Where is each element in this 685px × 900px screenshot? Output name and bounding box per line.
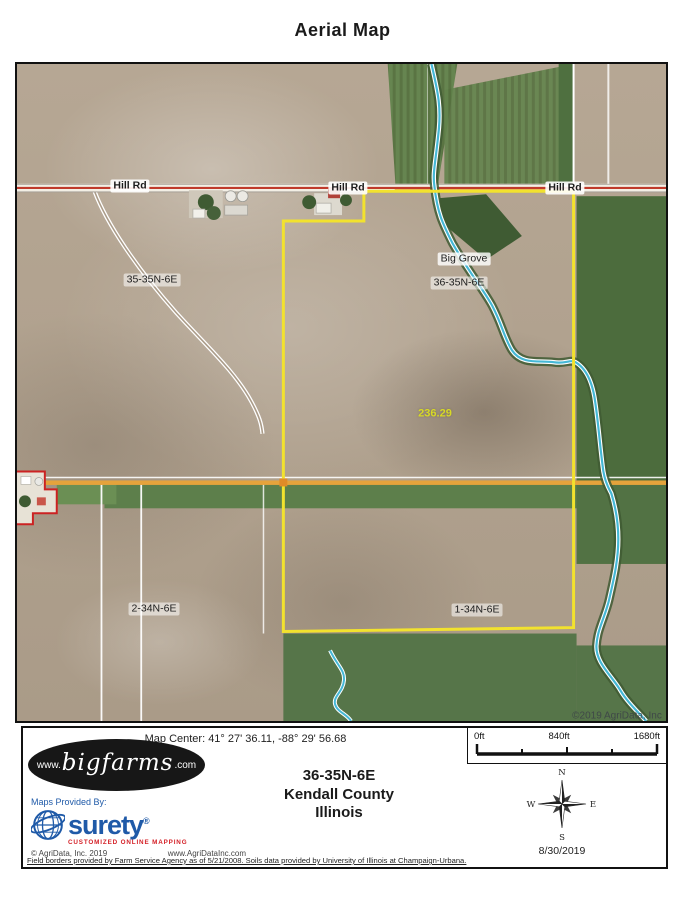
surety-tagline: CUSTOMIZED ONLINE MAPPING [68, 839, 187, 846]
farmstead-red-outline [17, 472, 57, 525]
aerial-map: Hill Rd Hill Rd Hill Rd 35-35N-6E Big Gr… [15, 62, 668, 723]
road-label-hill-rd-2: Hill Rd [328, 182, 367, 195]
provider-label: Maps Provided By: [31, 797, 266, 807]
road-label-hill-rd-3: Hill Rd [545, 182, 584, 195]
surety-wordmark: surety® [68, 810, 150, 840]
surety-globe-icon [31, 808, 65, 842]
location-county: Kendall County [239, 786, 439, 805]
scale-tick-840: 840ft [549, 731, 570, 742]
aerial-imagery [17, 64, 666, 721]
scale-bar: 0ft 840ft 1680ft [467, 728, 666, 764]
data-source-disclaimer: Field borders provided by Farm Service A… [27, 856, 567, 865]
location-block: 36-35N-6E Kendall County Illinois [239, 767, 439, 823]
compass-w: W [527, 800, 536, 810]
road-label-hill-rd-1: Hill Rd [110, 180, 149, 193]
township-label-35-35n-6e: 35-35N-6E [124, 274, 181, 287]
township-label-36-35n-6e: 36-35N-6E [431, 277, 488, 290]
map-footer: Map Center: 41° 27' 36.11, -88° 29' 56.6… [21, 726, 668, 869]
compass-rose-icon: N S E W [522, 764, 602, 844]
bigfarms-tld: .com [174, 760, 196, 771]
compass-n: N [558, 768, 566, 778]
compass-s: S [559, 833, 565, 843]
scale-tick-1680: 1680ft [634, 731, 660, 742]
compass-e: E [590, 800, 596, 810]
scale-tick-0: 0ft [474, 731, 485, 742]
township-label-2-34n-6e: 2-34N-6E [129, 603, 180, 616]
boundary-road-marker [279, 478, 287, 486]
farm-road [95, 191, 263, 434]
township-label-1-34n-6e: 1-34N-6E [452, 604, 503, 617]
place-label-big-grove: Big Grove [438, 253, 491, 266]
bigfarms-name: bigfarms [62, 750, 174, 776]
section-road [17, 480, 666, 484]
location-state: Illinois [239, 804, 439, 823]
bigfarms-www: www. [37, 760, 61, 771]
farmstead-west [189, 190, 248, 220]
aerial-map-page: Aerial Map [0, 0, 685, 900]
registered-mark: ® [143, 816, 150, 826]
provider-block: Maps Provided By: surety® CUSTOMIZED ONL… [31, 797, 266, 858]
acreage-label: 236.29 [415, 408, 455, 421]
location-parcel: 36-35N-6E [239, 767, 439, 786]
copyright-watermark: ©2019 AgriData, Inc [569, 710, 665, 723]
page-title: Aerial Map [0, 20, 685, 41]
scale-bar-graphic [473, 742, 661, 757]
bigfarms-logo: www. bigfarms .com [28, 739, 205, 791]
